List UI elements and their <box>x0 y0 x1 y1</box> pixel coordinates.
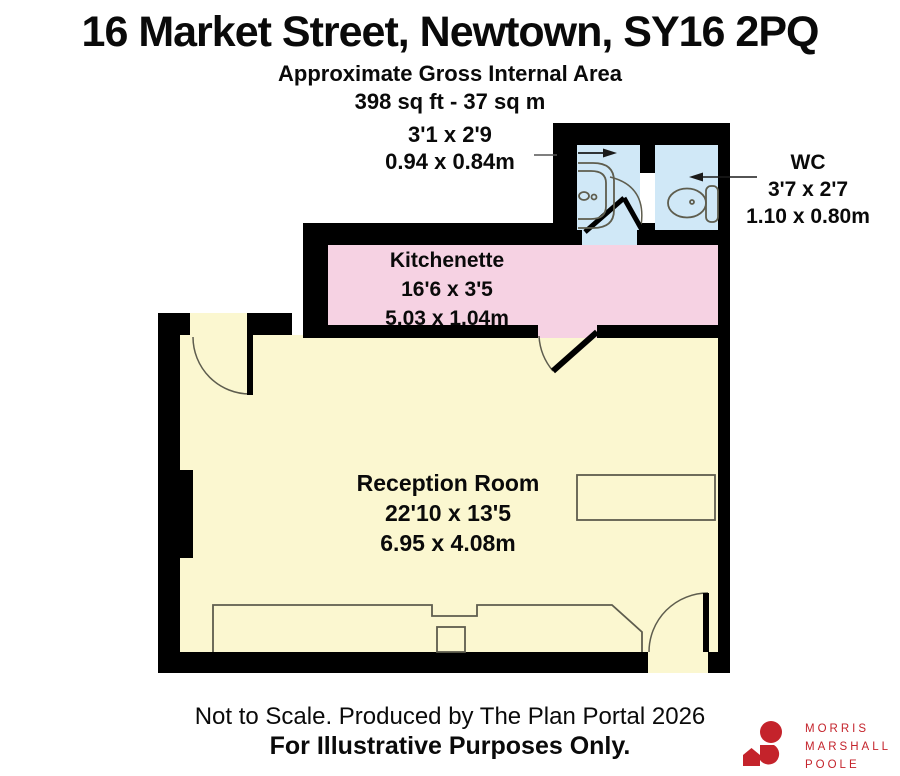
wall-segment <box>158 313 180 673</box>
wall-segment <box>708 652 730 673</box>
logo-line1: MORRIS <box>805 720 891 738</box>
wc-name: WC <box>746 149 870 176</box>
wall-segment <box>158 652 648 673</box>
logo-leaf-shape <box>760 745 779 765</box>
wall-segment <box>640 145 655 173</box>
agency-logo-text: MORRIS MARSHALL POOLE <box>805 717 891 774</box>
reception-dims-m: 6.95 x 4.08m <box>357 528 540 558</box>
door-threshold-top-left <box>190 313 247 335</box>
reception-dims-ft: 22'10 x 13'5 <box>357 498 540 528</box>
agency-logo: MORRIS MARSHALL POOLE <box>740 717 891 774</box>
label-reception: Reception Room 22'10 x 13'5 6.95 x 4.08m <box>357 468 540 558</box>
wall-segment <box>303 223 553 245</box>
agency-logo-icon <box>740 717 792 769</box>
kitchenette-name: Kitchenette <box>385 246 509 275</box>
door-threshold-wc <box>582 230 637 245</box>
floor-plan-drawing <box>0 0 900 776</box>
wall-segment <box>553 123 730 145</box>
wall-segment <box>247 313 292 335</box>
wc-dims-ft: 3'7 x 2'7 <box>746 176 870 203</box>
kitchenette-dims-m: 5.03 x 1.04m <box>385 304 509 333</box>
reception-name: Reception Room <box>357 468 540 498</box>
wall-segment <box>597 325 718 338</box>
logo-line2: MARSHALL <box>805 738 891 756</box>
wall-segment <box>577 230 582 245</box>
floorplan-page: 16 Market Street, Newtown, SY16 2PQ Appr… <box>0 0 900 776</box>
label-wc-left: 3'1 x 2'9 0.94 x 0.84m <box>385 121 515 175</box>
logo-house-icon <box>743 748 760 766</box>
kitchenette-dims-ft: 16'6 x 3'5 <box>385 275 509 304</box>
wall-segment <box>303 223 328 338</box>
label-kitchenette: Kitchenette 16'6 x 3'5 5.03 x 1.04m <box>385 246 509 333</box>
logo-line3: POOLE <box>805 756 891 774</box>
label-wc-right: WC 3'7 x 2'7 1.10 x 0.80m <box>746 149 870 230</box>
wall-segment <box>553 123 577 245</box>
wall-pier <box>180 470 193 558</box>
logo-circle-shape <box>760 721 782 743</box>
door-threshold-entrance <box>648 652 708 673</box>
wc-left-dims-m: 0.94 x 0.84m <box>385 148 515 175</box>
wc-left-dims-ft: 3'1 x 2'9 <box>385 121 515 148</box>
wc-dims-m: 1.10 x 0.80m <box>746 203 870 230</box>
wall-segment <box>718 123 730 673</box>
